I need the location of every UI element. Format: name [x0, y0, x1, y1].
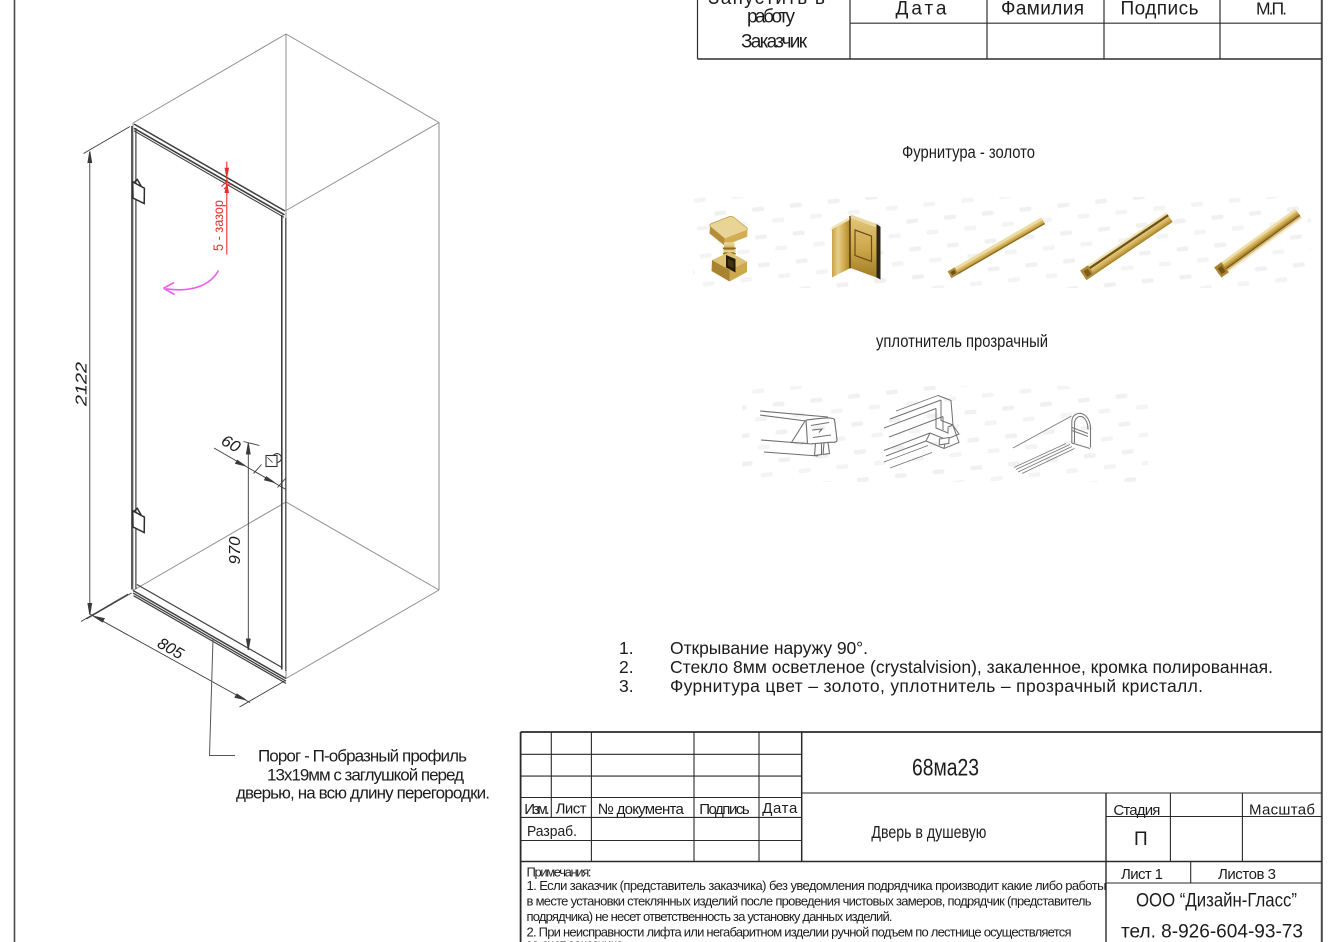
svg-text:тел. 8-926-604-93-73: тел. 8-926-604-93-73	[1121, 921, 1303, 942]
svg-text:подрядчика) не несет ответстве: подрядчика) не несет ответственность за …	[527, 909, 893, 924]
svg-text:Листов 3: Листов 3	[1218, 866, 1276, 883]
svg-text:в месте установки стеклянных и: в месте установки стеклянных изделий пос…	[527, 894, 1092, 909]
svg-text:Дверь в душевую: Дверь в душевую	[871, 822, 986, 842]
svg-text:13х19мм с заглушкой перед: 13х19мм с заглушкой перед	[267, 766, 464, 785]
svg-text:уплотнитель прозрачный: уплотнитель прозрачный	[876, 331, 1048, 351]
svg-text:Фамилия: Фамилия	[1001, 0, 1084, 20]
svg-text:Стадия: Стадия	[1113, 802, 1160, 819]
svg-text:Фурнитура - золото: Фурнитура - золото	[902, 142, 1035, 162]
svg-text:Масштаб: Масштаб	[1249, 802, 1315, 819]
svg-text:Стекло 8мм осветленое (crystal: Стекло 8мм осветленое (crystalvision), з…	[670, 657, 1273, 677]
svg-text:Открывание наружу 90°.: Открывание наружу 90°.	[670, 638, 868, 658]
svg-text:работу: работу	[747, 7, 796, 28]
svg-text:Заказчик: Заказчик	[741, 32, 808, 53]
svg-text:Подпись: Подпись	[1121, 0, 1199, 20]
svg-text:805: 805	[154, 635, 186, 663]
svg-text:3.: 3.	[619, 676, 634, 696]
svg-text:Изм.: Изм.	[524, 801, 550, 818]
svg-text:Фурнитура цвет – золото, уплот: Фурнитура цвет – золото, уплотнитель – п…	[670, 676, 1203, 696]
svg-text:за счет заказчика.: за счет заказчика.	[527, 937, 627, 942]
svg-text:5 - зазор: 5 - зазор	[211, 200, 226, 251]
svg-text:Дата: Дата	[762, 800, 798, 817]
svg-text:Подпись: Подпись	[699, 801, 750, 818]
svg-text:68ма23: 68ма23	[912, 755, 979, 782]
svg-text:2.: 2.	[619, 657, 634, 677]
svg-text:Разраб.: Разраб.	[527, 823, 577, 840]
svg-text:Лист 1: Лист 1	[1121, 866, 1163, 883]
svg-text:М.П.: М.П.	[1256, 0, 1287, 19]
svg-text:2122: 2122	[73, 362, 90, 407]
svg-text:970: 970	[227, 536, 244, 564]
svg-text:1. Если заказчик (представител: 1. Если заказчик (представитель заказчик…	[527, 878, 1107, 893]
svg-text:дверью, на всю длину перегород: дверью, на всю длину перегородки.	[236, 784, 490, 803]
svg-text:1.: 1.	[619, 638, 634, 658]
svg-text:П: П	[1134, 829, 1148, 850]
svg-text:Лист: Лист	[556, 801, 587, 818]
svg-text:Порог - П-образный профиль: Порог - П-образный профиль	[258, 747, 467, 766]
svg-text:№ документа: № документа	[598, 801, 685, 818]
svg-text:ООО “Дизайн-Гласс”: ООО “Дизайн-Гласс”	[1136, 890, 1297, 912]
svg-text:Дата: Дата	[896, 0, 947, 20]
